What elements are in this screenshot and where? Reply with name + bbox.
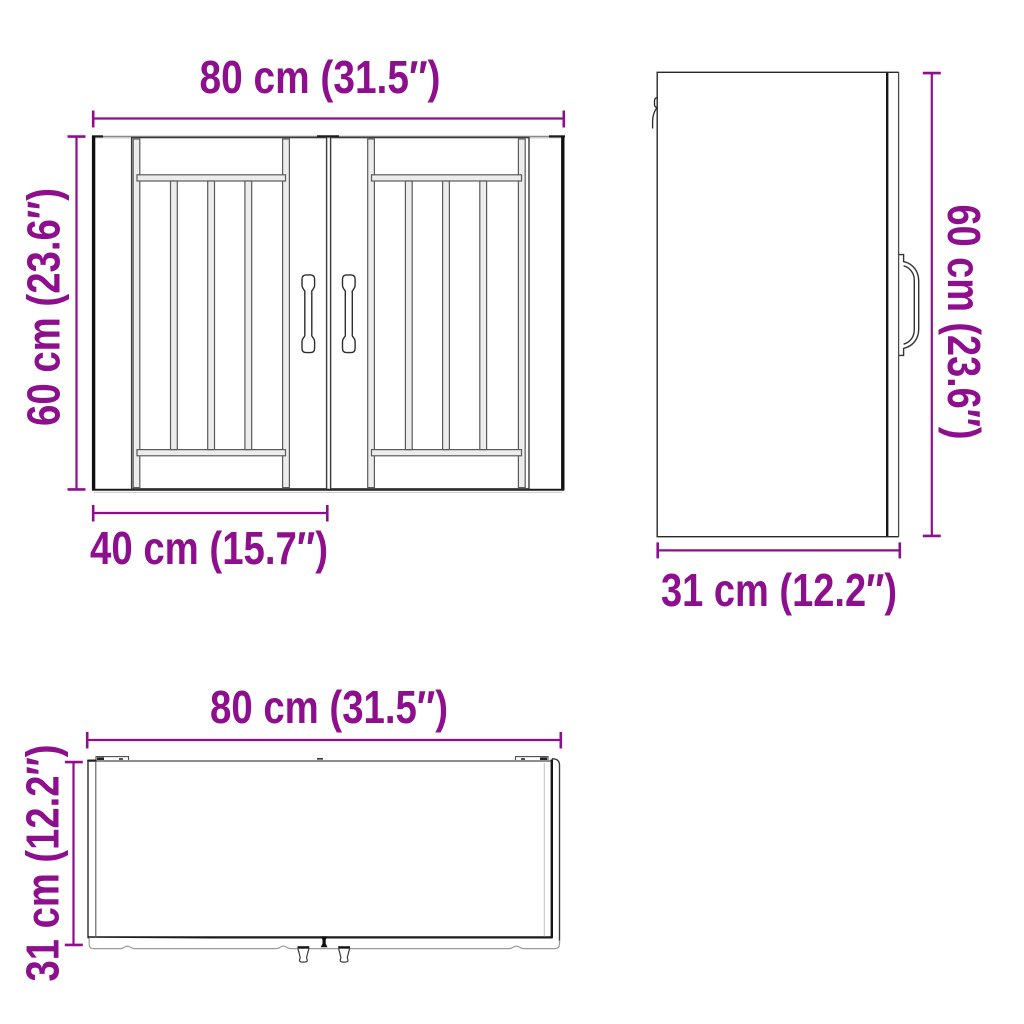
svg-text:31 cm (12.2″): 31 cm (12.2″) bbox=[17, 745, 69, 982]
svg-text:31 cm (12.2″): 31 cm (12.2″) bbox=[661, 564, 897, 616]
svg-text:80 cm (31.5″): 80 cm (31.5″) bbox=[210, 681, 448, 733]
svg-text:60 cm (23.6″): 60 cm (23.6″) bbox=[938, 205, 990, 440]
svg-text:80 cm (31.5″): 80 cm (31.5″) bbox=[200, 51, 441, 103]
svg-text:60 cm (23.6″): 60 cm (23.6″) bbox=[18, 188, 70, 426]
svg-text:40 cm (15.7″): 40 cm (15.7″) bbox=[90, 522, 328, 574]
